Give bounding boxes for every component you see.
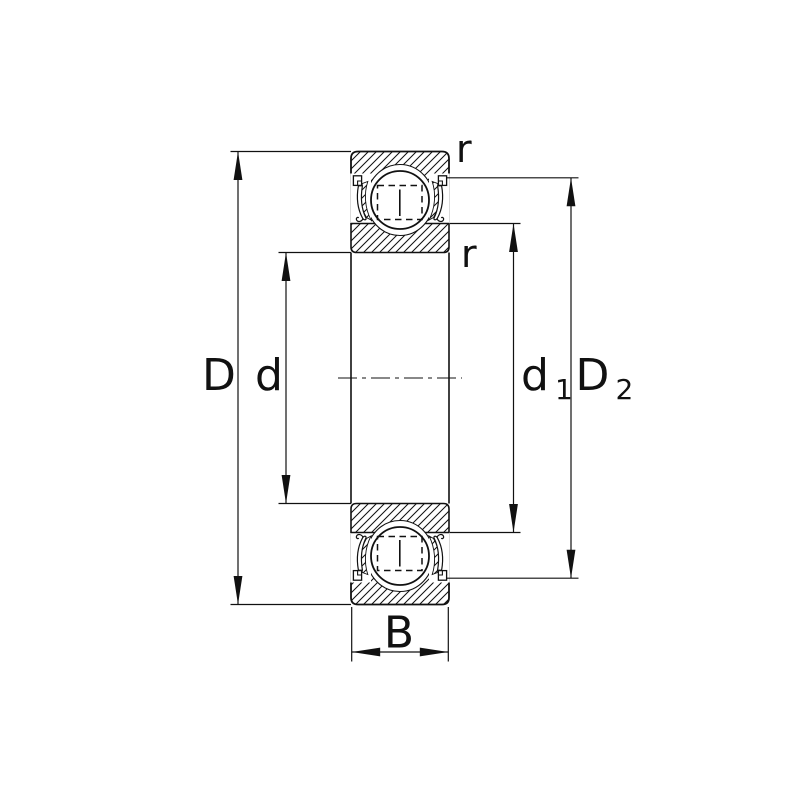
label-chamfer-outer: r [456,127,472,171]
bearing-upper-section [350,152,450,253]
label-chamfer-inner: r [461,232,477,276]
label-bore-diameter: d [255,350,283,401]
bearing-lower-section [350,504,450,605]
label-outer-diameter: D [202,350,236,401]
background [0,0,800,800]
label-width: B [384,608,414,659]
bearing-dimension-diagram: D d d 1 D 2 B r r [0,0,800,800]
